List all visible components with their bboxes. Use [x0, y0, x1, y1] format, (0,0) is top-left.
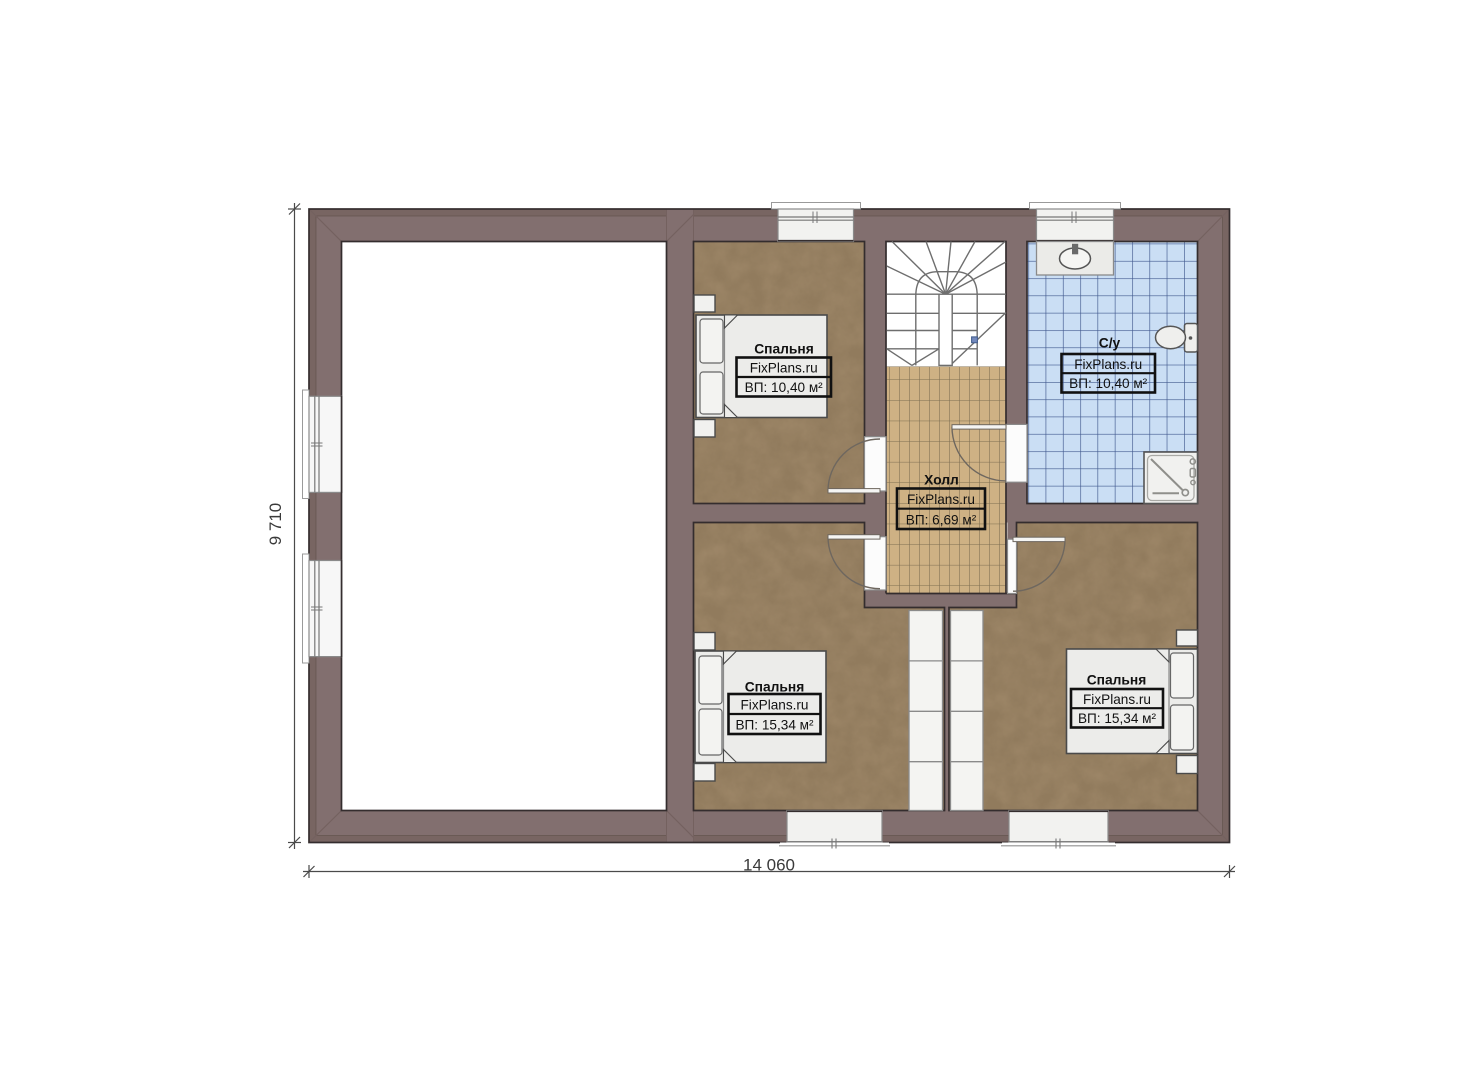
svg-text:ВП: 10,40 м²: ВП: 10,40 м²: [745, 380, 824, 395]
svg-text:FixPlans.ru: FixPlans.ru: [741, 698, 809, 713]
svg-text:FixPlans.ru: FixPlans.ru: [907, 492, 975, 507]
svg-text:FixPlans.ru: FixPlans.ru: [1083, 692, 1151, 707]
svg-text:ВП: 15,34 м²: ВП: 15,34 м²: [1078, 711, 1157, 726]
svg-text:FixPlans.ru: FixPlans.ru: [1074, 357, 1142, 372]
svg-text:FixPlans.ru: FixPlans.ru: [750, 361, 818, 376]
svg-text:9 710: 9 710: [266, 503, 285, 546]
svg-text:14 060: 14 060: [743, 856, 795, 875]
svg-text:Спальня: Спальня: [1087, 673, 1147, 688]
svg-text:Холл: Холл: [924, 473, 959, 488]
svg-text:ВП: 6,69 м²: ВП: 6,69 м²: [906, 513, 977, 528]
svg-text:ВП: 10,40 м²: ВП: 10,40 м²: [1069, 376, 1148, 391]
svg-text:Спальня: Спальня: [754, 342, 814, 357]
svg-text:ВП: 15,34 м²: ВП: 15,34 м²: [735, 718, 814, 733]
svg-text:Спальня: Спальня: [745, 680, 805, 695]
svg-text:С/у: С/у: [1099, 336, 1121, 351]
